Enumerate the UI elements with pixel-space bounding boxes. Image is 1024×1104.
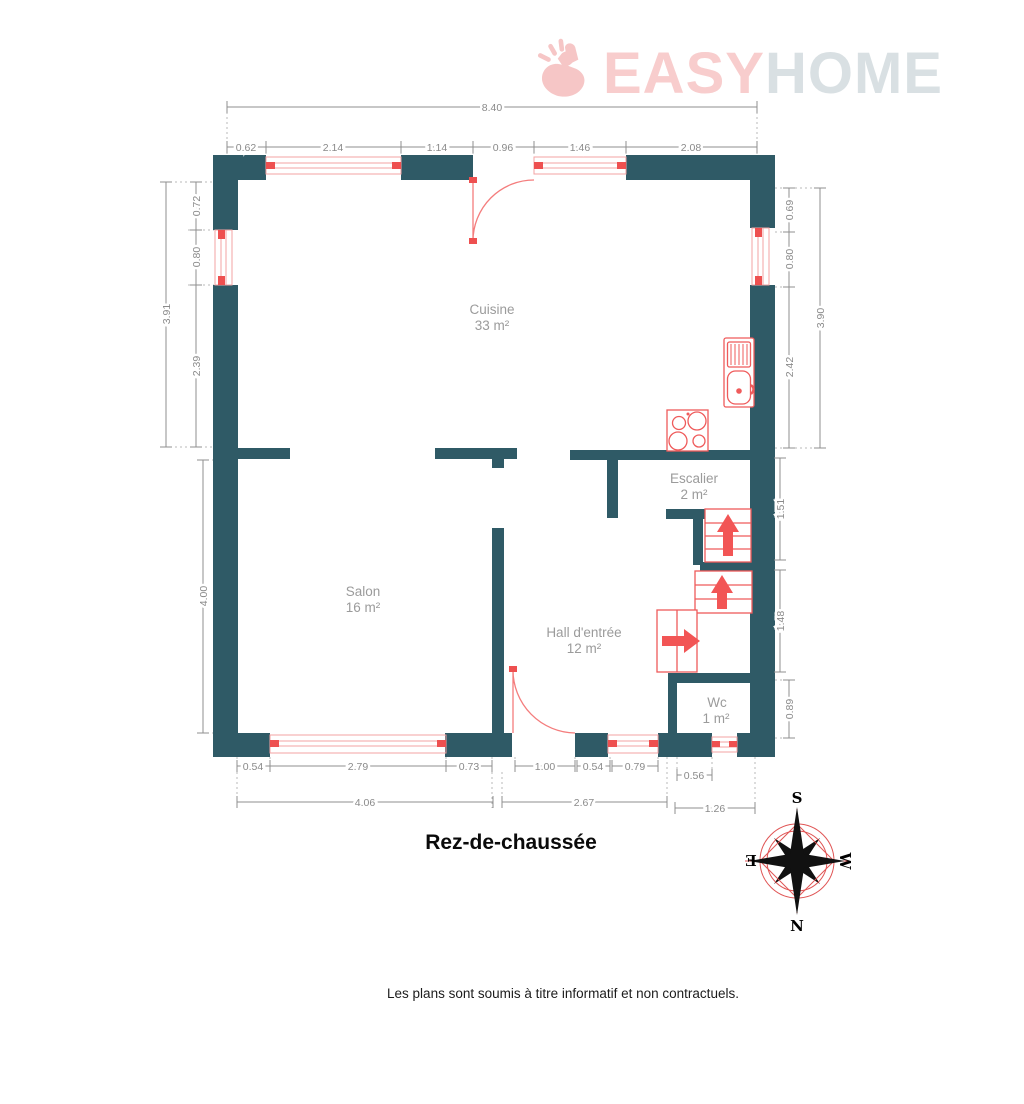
compass-south: S	[792, 789, 803, 807]
dim-bottom-outer-2: 1.26	[705, 803, 726, 815]
entrance-door-swing	[513, 670, 575, 733]
dim-right-lower-2: 0.89	[784, 699, 796, 720]
dim-top-0: 0.62	[236, 142, 257, 154]
dim-bottom-5: 0.79	[625, 761, 646, 773]
disclaimer-text: Les plans sont soumis à titre informatif…	[387, 986, 739, 1001]
sink	[724, 338, 754, 407]
dim-bottom-3: 1.00	[535, 761, 556, 773]
window-wc	[712, 737, 737, 752]
dim-top-4: 1.46	[570, 142, 591, 154]
floor-title: Rez-de-chaussée	[425, 831, 597, 855]
room-escalier-area: 2 m²	[681, 487, 709, 502]
dim-right-lower-1: 1.48	[775, 611, 787, 632]
window-top-left	[266, 157, 401, 174]
stairs	[657, 509, 752, 672]
room-cuisine-area: 33 m²	[475, 318, 510, 333]
dim-left-1: 0.80	[191, 247, 203, 268]
window-hall	[608, 735, 658, 753]
dim-right-1: 0.80	[784, 249, 796, 270]
room-escalier-name: Escalier	[670, 471, 719, 486]
compass-west: W	[836, 852, 854, 871]
compass-east: E	[745, 852, 756, 870]
kitchen-door-swing	[473, 180, 534, 241]
floor-plan-drawing: 8.40 0.62 2.14 1.14 0.96 1.46 2.08 3.91 …	[0, 0, 1024, 1104]
dim-bottom-2: 0.73	[459, 761, 480, 773]
room-cuisine-name: Cuisine	[469, 302, 514, 317]
kitchen-fixtures	[667, 338, 754, 451]
dim-right-0: 0.69	[784, 200, 796, 221]
room-salon-name: Salon	[346, 584, 381, 599]
window-salon	[270, 735, 446, 753]
cooktop	[667, 410, 708, 451]
dim-right-2: 2.42	[784, 357, 796, 378]
room-wc-name: Wc	[707, 695, 727, 710]
dim-bottom-6: 0.56	[684, 770, 705, 782]
room-salon-area: 16 m²	[346, 600, 381, 615]
dim-bottom-outer-1: 2.67	[574, 797, 595, 809]
dim-right-total: 3.90	[815, 308, 827, 329]
dim-top-3: 0.96	[493, 142, 514, 154]
floorplan-page: EASYHOME	[0, 0, 1024, 1104]
room-hall-name: Hall d'entrée	[546, 625, 621, 640]
dim-bottom-4: 0.54	[583, 761, 604, 773]
window-right	[752, 228, 769, 285]
dim-top-5: 2.08	[681, 142, 702, 154]
compass-north: N	[790, 917, 804, 935]
dim-right-lower-0: 1.51	[775, 499, 787, 520]
dim-top-total: 8.40	[482, 102, 503, 114]
dim-top-1: 2.14	[323, 142, 344, 154]
compass-rose-icon: S N E W	[745, 789, 854, 935]
dim-left-2: 2.39	[191, 356, 203, 377]
dim-left-0: 0.72	[191, 196, 203, 217]
window-top-right	[534, 157, 626, 174]
dim-bottom-1: 2.79	[348, 761, 369, 773]
room-hall-area: 12 m²	[567, 641, 602, 656]
dim-bottom-outer-0: 4.06	[355, 797, 376, 809]
dim-left-lower: 4.00	[198, 586, 210, 607]
dim-top-2: 1.14	[427, 142, 448, 154]
window-left	[215, 230, 232, 285]
dim-left-total: 3.91	[161, 304, 173, 325]
room-wc-area: 1 m²	[703, 711, 731, 726]
dim-bottom-0: 0.54	[243, 761, 264, 773]
